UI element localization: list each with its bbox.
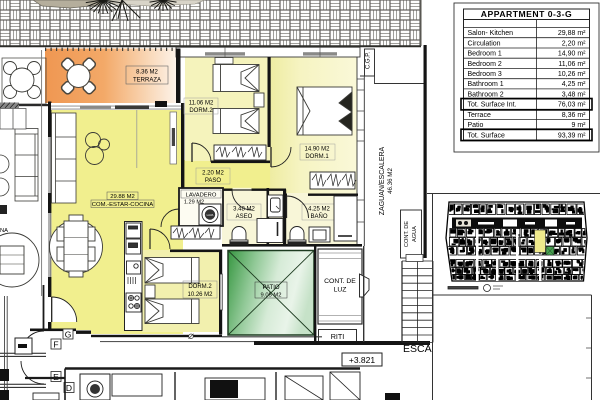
svg-text:3,48 m²: 3,48 m² (562, 92, 586, 99)
svg-text:8,36 m²: 8,36 m² (562, 112, 586, 119)
svg-text:10,26 m²: 10,26 m² (558, 71, 586, 78)
svg-text:CONT. DE: CONT. DE (404, 221, 410, 247)
svg-text:+3.821: +3.821 (349, 355, 376, 365)
svg-text:ASEO: ASEO (236, 214, 253, 220)
svg-text:76,03 m²: 76,03 m² (558, 102, 586, 109)
svg-text:PASO: PASO (205, 178, 222, 184)
svg-text:11,06 m²: 11,06 m² (558, 61, 586, 68)
svg-text:Bathroom 2: Bathroom 2 (468, 92, 504, 99)
svg-text:PATIO: PATIO (262, 285, 279, 291)
svg-text:4.25 M2: 4.25 M2 (308, 207, 330, 213)
svg-text:93,39 m²: 93,39 m² (558, 132, 586, 139)
svg-text:4,25 m²: 4,25 m² (562, 81, 586, 88)
svg-text:2,20 m²: 2,20 m² (562, 40, 586, 47)
svg-text:10.26 M2: 10.26 M2 (187, 292, 213, 298)
svg-text:C.G.P.: C.G.P. (366, 52, 372, 70)
svg-text:ESCA: ESCA (403, 343, 432, 355)
svg-text:Bedroom 1: Bedroom 1 (468, 51, 502, 58)
svg-text:Patio: Patio (468, 122, 484, 129)
svg-text:COM.-ESTAR-COCINA: COM.-ESTAR-COCINA (92, 202, 153, 208)
svg-text:D: D (66, 383, 72, 393)
svg-text:14.90 M2: 14.90 M2 (304, 147, 330, 153)
svg-text:LAVA: LAVA (207, 213, 214, 217)
svg-text:9 m²: 9 m² (572, 122, 587, 129)
svg-text:14,90 m²: 14,90 m² (558, 51, 586, 58)
svg-text:8.36 M2: 8.36 M2 (136, 70, 158, 76)
svg-text:11.06 M2: 11.06 M2 (189, 101, 214, 107)
svg-text:F: F (53, 340, 58, 350)
svg-text:Tot. Surface: Tot. Surface (468, 132, 505, 139)
svg-text:DORM.1: DORM.1 (305, 154, 329, 160)
svg-text:BAÑO: BAÑO (310, 213, 327, 220)
svg-text:2.20 M2: 2.20 M2 (202, 171, 224, 177)
svg-text:Tot. Surface Int.: Tot. Surface Int. (468, 102, 517, 109)
svg-text:9.05 M2: 9.05 M2 (261, 293, 282, 299)
svg-text:Terrace: Terrace (468, 112, 491, 119)
svg-text:TERRAZA: TERRAZA (133, 78, 161, 84)
svg-text:29.88 M2: 29.88 M2 (110, 194, 135, 200)
svg-text:DORM.2: DORM.2 (188, 284, 212, 290)
svg-text:G: G (65, 330, 72, 340)
svg-text:RITI: RITI (331, 332, 345, 341)
svg-text:CONT. DE: CONT. DE (324, 278, 356, 285)
svg-text:Bedroom 3: Bedroom 3 (468, 71, 502, 78)
svg-text:Circulation: Circulation (468, 40, 501, 47)
svg-text:LUZ: LUZ (334, 287, 347, 294)
svg-text:DORM.2: DORM.2 (189, 108, 213, 114)
svg-text:AGUA: AGUA (412, 226, 418, 242)
svg-text:Bedroom 2: Bedroom 2 (468, 61, 502, 68)
svg-text:Salon- Kitchen: Salon- Kitchen (468, 30, 514, 37)
svg-text:29,88 m²: 29,88 m² (558, 30, 586, 37)
svg-text:APPARTMENT 0-3-G: APPARTMENT 0-3-G (481, 9, 572, 19)
svg-text:46.36 M2: 46.36 M2 (387, 168, 394, 194)
svg-text:3.48 M2: 3.48 M2 (233, 207, 255, 213)
svg-text:ZAGUAN/ESCALERA: ZAGUAN/ESCALERA (379, 146, 386, 215)
svg-text:LAVADERO: LAVADERO (186, 193, 217, 199)
svg-text:Bathroom 1: Bathroom 1 (468, 81, 504, 88)
